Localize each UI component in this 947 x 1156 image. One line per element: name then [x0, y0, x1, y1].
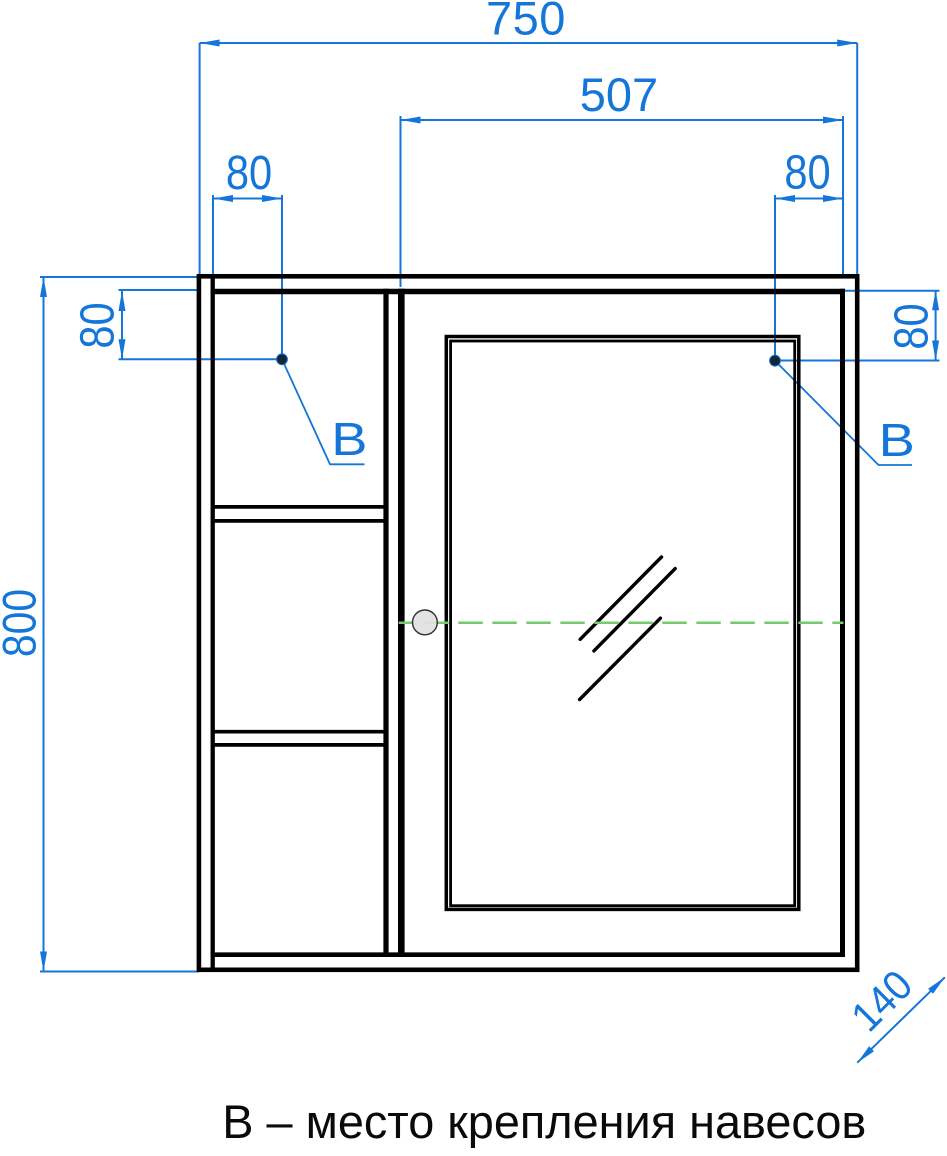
svg-text:В: В: [879, 414, 915, 466]
svg-text:750: 750: [486, 0, 566, 45]
svg-text:В – место крепления навесов: В – место крепления навесов: [222, 1095, 866, 1148]
svg-text:800: 800: [0, 589, 46, 657]
svg-text:140: 140: [842, 961, 922, 1041]
svg-text:80: 80: [70, 302, 124, 348]
svg-text:80: 80: [884, 303, 938, 349]
svg-text:80: 80: [784, 145, 830, 199]
svg-text:В: В: [331, 413, 367, 465]
svg-text:507: 507: [580, 68, 658, 121]
svg-text:80: 80: [226, 145, 272, 199]
